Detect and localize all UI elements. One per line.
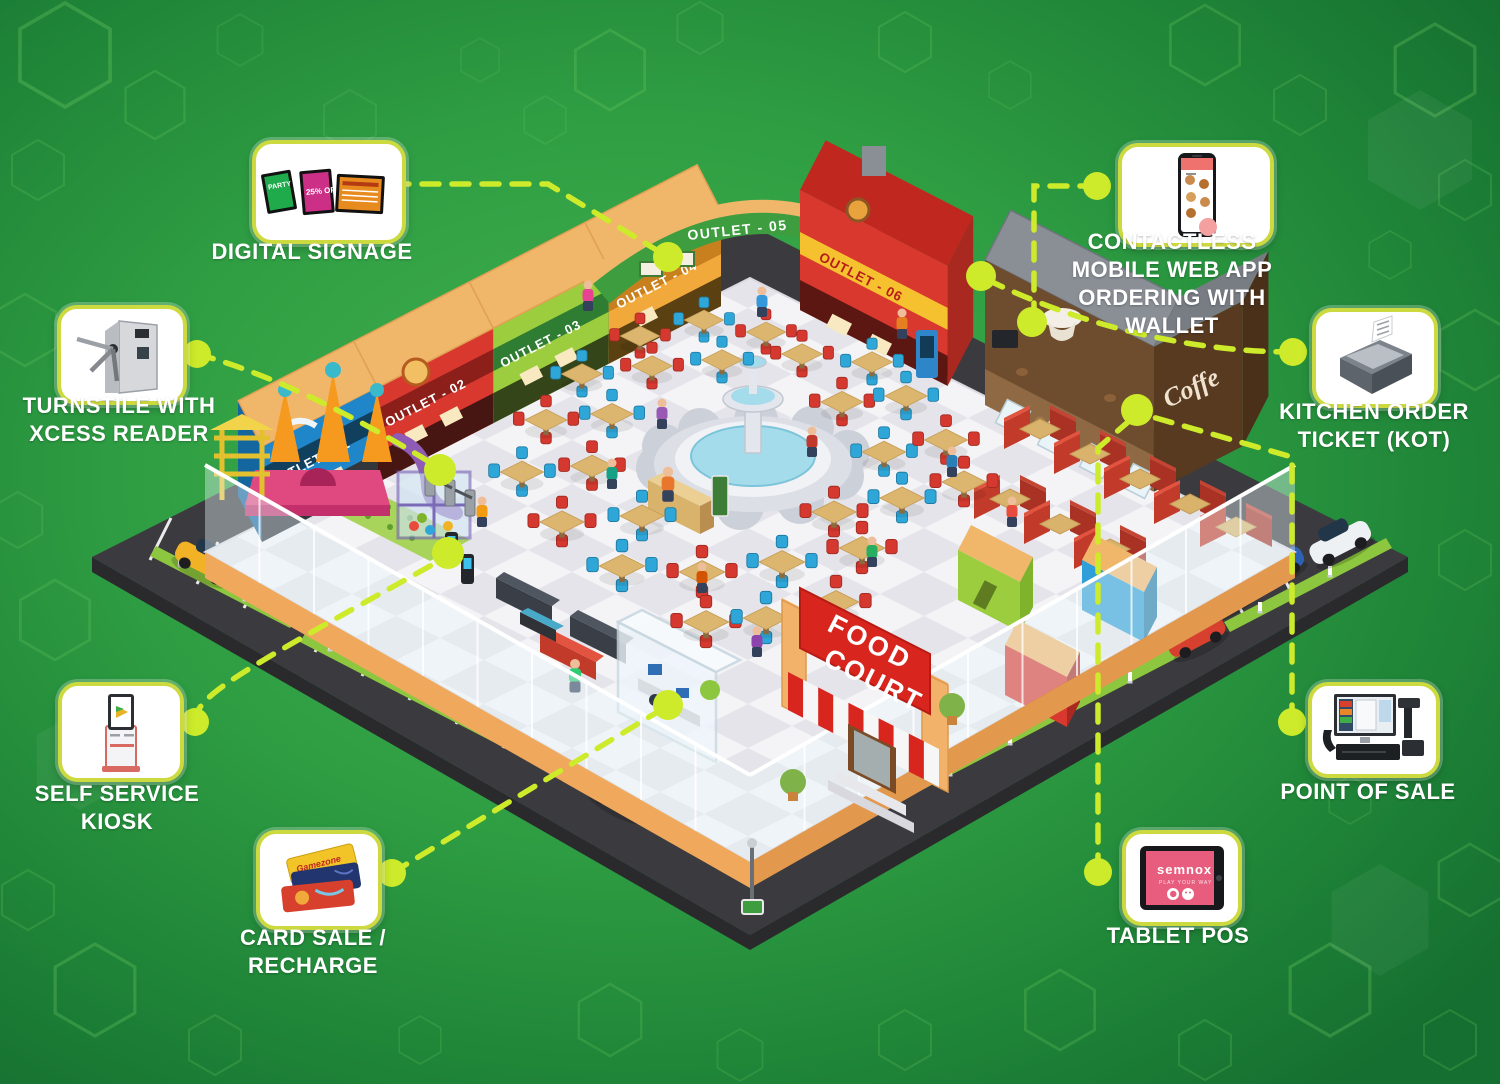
callout-card-turnstile [57,305,187,405]
callout-card-tablet-pos: semnox PLAY YOUR WAY [1122,830,1242,926]
tablet-pos-label: TABLET POS [1072,922,1284,950]
digital-signage-icon: PARTY DEALS 25% OFF [256,144,402,240]
cards-icon: Gamezone [260,834,378,926]
kiosk-label: SELF SERVICE KIOSK [7,780,227,836]
callout-card-card-sale: Gamezone [256,830,382,930]
kot-label: KITCHEN ORDER TICKET (KOT) [1262,398,1486,454]
self-service-kiosk-icon [62,686,180,778]
svg-text:semnox: semnox [1157,862,1212,877]
svg-text:25% OFF: 25% OFF [306,185,341,197]
callout-card-digital-signage: PARTY DEALS 25% OFF [252,140,406,244]
callout-card-pos [1308,682,1440,778]
pos-icon [1312,686,1436,774]
callout-card-kiosk [58,682,184,782]
turnstile-icon [61,309,183,401]
digital-signage-label: DIGITAL SIGNAGE [192,238,432,266]
pos-label: POINT OF SALE [1254,778,1482,806]
turnstile-label: TURNSTILE WITH XCESS READER [9,392,229,448]
callout-card-kot [1312,308,1438,408]
contactless-label: CONTACTLESS MOBILE WEB APP ORDERING WITH… [1042,228,1302,341]
svg-text:PLAY YOUR WAY: PLAY YOUR WAY [1159,880,1212,886]
tablet-pos-icon: semnox PLAY YOUR WAY [1126,834,1238,922]
card-sale-label: CARD SALE / RECHARGE [218,924,408,980]
kot-printer-icon [1316,312,1434,404]
infographic-stage: OUTLET - 01 OUTLET - 02 OUTLET - 03 OUTL… [0,0,1500,1084]
